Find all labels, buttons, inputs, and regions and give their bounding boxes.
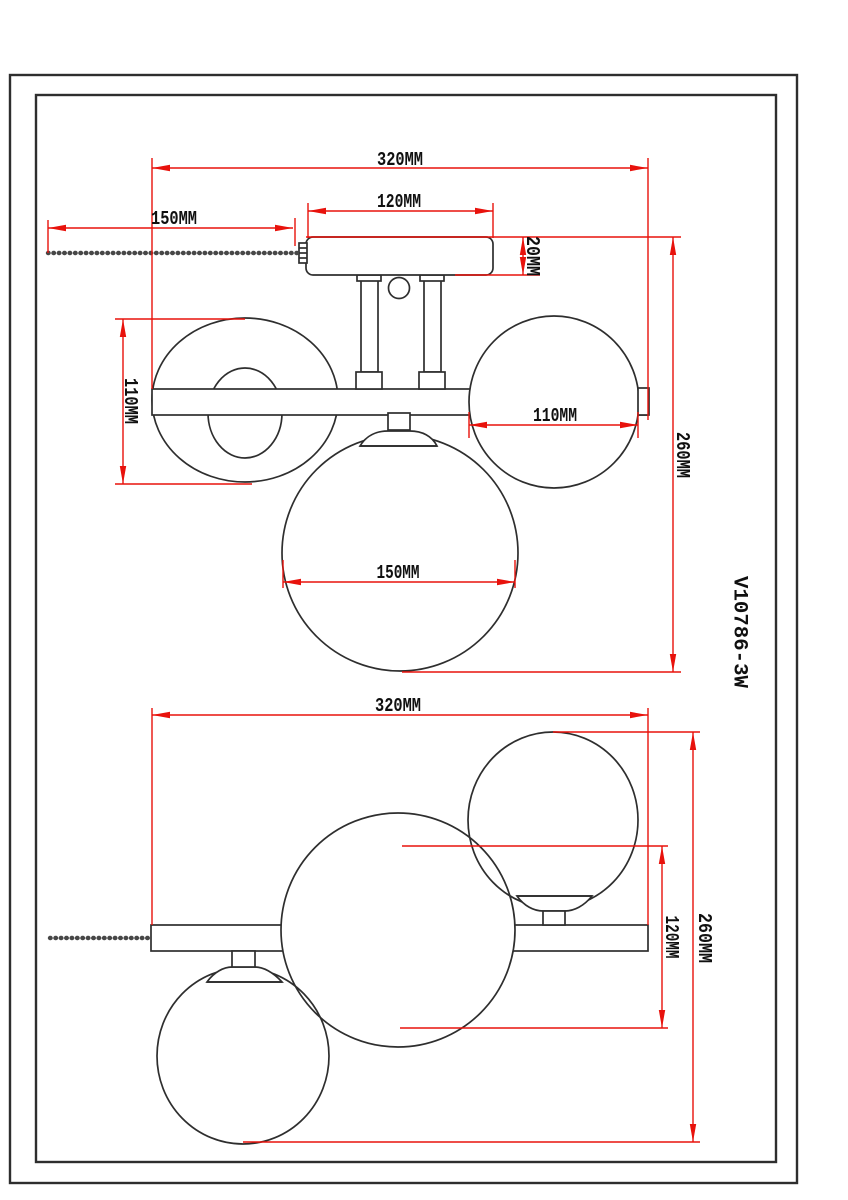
dimension-label-overall-width: 320MM [377,149,423,171]
dimension-label-top-overall-width: 320MM [375,695,421,717]
right-globe [469,316,639,488]
dimension-label-canopy-height: 20MM [521,236,543,276]
left-stem [361,280,378,372]
front-view: 320MM 120MM 150MM 20MM 110MM 110MM 150MM… [48,149,693,672]
dimension-label-canopy-width: 120MM [377,191,421,213]
right-stem-foot [419,372,445,389]
left-globe-neck [207,967,282,982]
dimension-label-side-globe-diameter: 110MM [533,405,577,427]
technical-drawing: 320MM 120MM 150MM 20MM 110MM 110MM 150MM… [0,0,848,1200]
center-globe [282,435,518,671]
right-stem-collar [420,275,444,281]
canopy-ball [389,278,410,299]
right-stem [424,280,441,372]
right-globe-socket [543,911,565,925]
dimension-label-globe-span: 120MM [660,916,682,959]
top-view: 320MM 120MM 260MM [50,695,715,1144]
dimension-label-side-globe-height: 110MM [119,378,141,424]
dimension-label-overall-depth: 260MM [693,913,715,963]
center-globe-socket [388,413,410,430]
left-stem-collar [357,275,381,281]
dimension-label-center-globe-diameter: 150MM [377,562,420,584]
canopy [306,237,493,275]
dimension-label-overall-height: 260MM [671,432,693,478]
dimension-label-chain-length: 150MM [151,208,197,230]
model-number: V10786-3W [728,576,751,688]
right-globe-neck [517,896,592,911]
drawing-sheet: 320MM 120MM 150MM 20MM 110MM 110MM 150MM… [0,0,848,1200]
center-globe-neck [360,431,437,446]
left-stem-foot [356,372,382,389]
left-globe-socket [232,951,255,967]
center-globe-top-view [281,813,515,1047]
